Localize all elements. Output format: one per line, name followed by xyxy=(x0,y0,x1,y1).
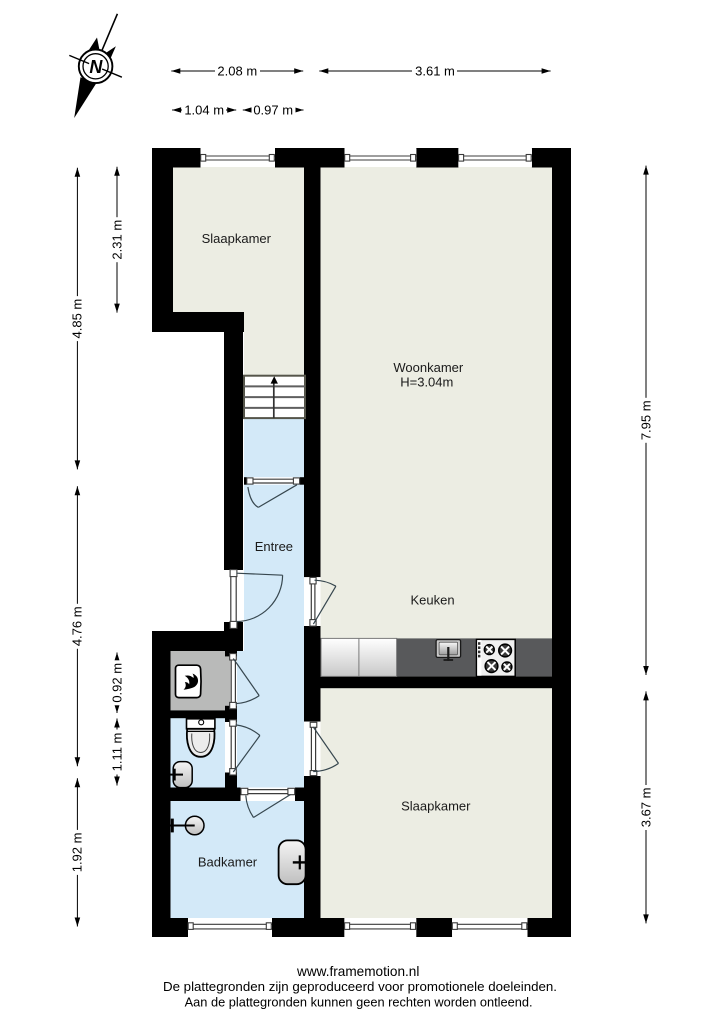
svg-text:3.67 m: 3.67 m xyxy=(638,788,653,828)
svg-text:Badkamer: Badkamer xyxy=(198,854,258,869)
svg-text:7.95 m: 7.95 m xyxy=(638,400,653,440)
svg-text:H=3.04m: H=3.04m xyxy=(400,374,453,389)
svg-text:De plattegronden zijn geproduc: De plattegronden zijn geproduceerd voor … xyxy=(163,979,557,994)
svg-text:Entree: Entree xyxy=(255,539,293,554)
svg-text:2.08 m: 2.08 m xyxy=(217,63,257,78)
svg-text:2.31 m: 2.31 m xyxy=(109,220,124,260)
svg-text:Aan de plattegronden kunnen ge: Aan de plattegronden kunnen geen rechten… xyxy=(185,994,533,1009)
svg-text:Woonkamer: Woonkamer xyxy=(393,360,464,375)
svg-text:0.92 m: 0.92 m xyxy=(109,663,124,703)
svg-text:4.76 m: 4.76 m xyxy=(70,606,85,646)
svg-text:4.85 m: 4.85 m xyxy=(70,299,85,339)
svg-text:1.11 m: 1.11 m xyxy=(109,733,124,772)
svg-text:www.framemotion.nl: www.framemotion.nl xyxy=(296,964,419,979)
svg-text:Slaapkamer: Slaapkamer xyxy=(202,231,272,246)
svg-text:Keuken: Keuken xyxy=(410,593,454,608)
svg-text:1.92 m: 1.92 m xyxy=(70,833,85,873)
svg-text:0.97 m: 0.97 m xyxy=(253,102,293,117)
svg-text:1.04 m: 1.04 m xyxy=(184,102,224,117)
svg-text:Slaapkamer: Slaapkamer xyxy=(401,799,471,814)
svg-text:3.61 m: 3.61 m xyxy=(415,63,455,78)
svg-text:N: N xyxy=(89,57,103,77)
